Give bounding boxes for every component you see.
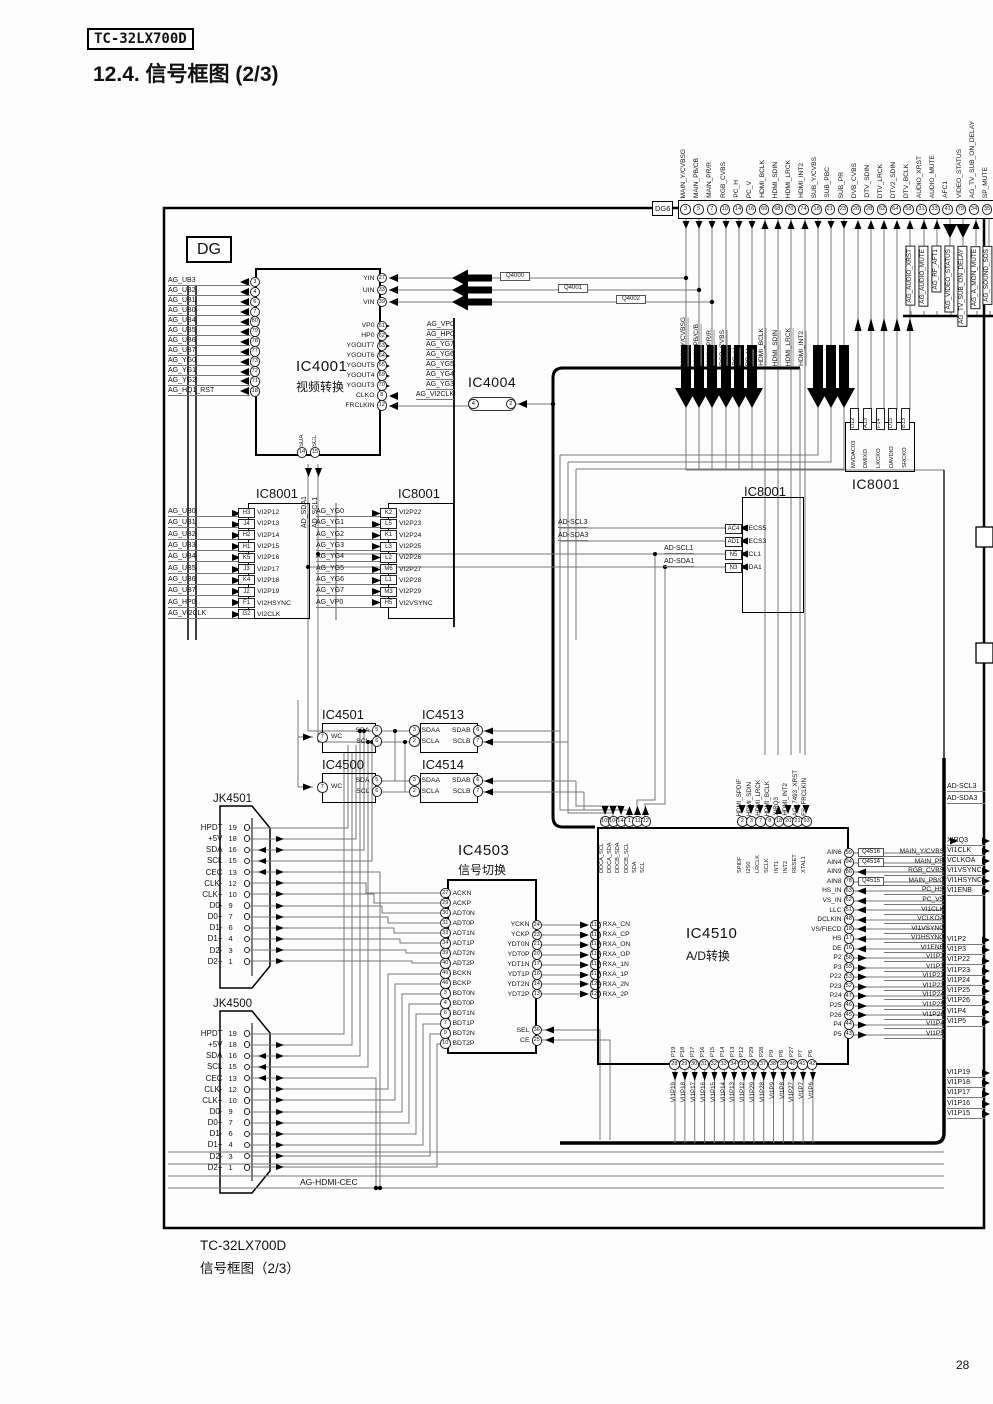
pin-row: AG_YG073 <box>168 357 260 367</box>
dg6-pin: 10 <box>718 204 731 215</box>
ad-sda1-bus-label: AD_SDA1 <box>301 486 308 528</box>
transistor-box: Q4000 <box>500 272 530 281</box>
dg6-signal-label: SUB_PBC <box>822 167 835 198</box>
dg6-pin: 58 <box>902 204 915 215</box>
ag-signal-label: AG_SOUND_SOS <box>982 246 992 305</box>
connector-pin-row: +5V 18 <box>172 1039 250 1050</box>
ic4500-right-pins: SDA5SCL6 <box>342 775 382 797</box>
transistor-box: Q4001 <box>558 284 588 293</box>
signal-row: VI1P24 <box>858 991 944 1001</box>
signal-row: VI1P4 <box>858 1020 944 1030</box>
connector-pin-row: D0+ 7 <box>172 911 250 922</box>
ad-scl1-label: AD-SCL1 <box>664 545 694 554</box>
ic4001-bottom-pins: SDA14 SCL15 <box>296 434 321 458</box>
pin-row: AG_VI2CLKG2VI2CLK <box>168 609 304 620</box>
ic8001c-pins: AC4XECS5 AD1XECS3 N5SCL1 N3SDA1 <box>725 522 801 574</box>
pin-row: YGOUT565 <box>337 361 387 371</box>
pin-row: UIN33 <box>337 284 387 296</box>
pin-row: AG_VP0H5VI2VSYNC <box>316 597 450 608</box>
bus-signal-label: MAIN_Y/CVBSG <box>678 317 691 366</box>
connector-pin-row: D0- 9 <box>172 900 250 911</box>
connector-pin-row: HPDT 19 <box>172 822 250 833</box>
pin-row: AG_UB0H3VI2P12 <box>168 507 304 518</box>
pin-row: AG_UB678 <box>168 337 260 347</box>
dg6-pin: 74 <box>797 204 810 215</box>
model-badge: TC-32LX700D <box>87 28 194 50</box>
pin-row: AG_UB579 <box>168 327 260 337</box>
bus-signal-label: HDMI_INT2 <box>796 331 809 366</box>
dg6-pin: 31 <box>915 204 928 215</box>
ic4510-bottom-pins: P1928P1829P1730P1631P1532P1433P1334P1235… <box>670 1037 818 1070</box>
pin-row: AC4XECS5 <box>725 522 801 535</box>
ic8001a-title: IC8001 <box>256 486 298 501</box>
pin-row: AG_UB16 <box>168 297 260 307</box>
dg6-pin: 64 <box>889 204 902 215</box>
signal-row: AG_YG4 <box>392 371 454 381</box>
jk4500-title: JK4500 <box>213 998 252 1010</box>
ad-sda1-label: AD-SDA1 <box>664 558 694 567</box>
right-edge-mid: XIRQ3VI1CLKVCLKOAVI1VSYNCVI1HSYNCVI1ENB <box>947 836 985 897</box>
pin-row: AG_UB6K4VI2P18 <box>168 575 304 586</box>
ic8001b-title: IC8001 <box>398 486 440 501</box>
ic4001-left-pins: AG_UB33 AG_UB24 AG_UB16 AG_UB07 AG_UB480… <box>168 277 260 396</box>
ic8001d-title: IC8001 <box>852 476 900 492</box>
signal-row: VI1CLK <box>858 905 944 915</box>
dg6-signal-label: AFC1 <box>940 181 953 198</box>
ic4510-right-signals: Q4516 MAIN_Y/CVBS Q4514 MAIN_PR RGB_CVBS… <box>858 848 944 1039</box>
dg6-pin: 62 <box>876 204 889 215</box>
pin-row: AG_YG5M6VI2P27 <box>316 563 450 574</box>
ic4514-right-pins: SDAB6SCLB7 <box>445 775 483 797</box>
pin-box: A13 <box>863 408 872 430</box>
connector-pin-row: D0+ 7 <box>172 1117 250 1128</box>
dg6-signal-label: DTV_SDIN <box>862 165 875 198</box>
pin-row: VIN39 <box>337 296 387 308</box>
pin-row: CLKO8 <box>337 391 387 401</box>
signal-row: AG_VP0 <box>392 321 454 331</box>
dg6-signal-label: MAIN_PR/R <box>704 162 717 198</box>
ad-sda3-label: AD-SDA3 <box>558 532 588 541</box>
pin-row: FRCLKIN12 <box>337 401 387 411</box>
signal-row: VI1P23 <box>858 982 944 992</box>
pin-box: F14 <box>876 408 885 430</box>
bus-signal-label: HDMI_SDIN <box>770 330 783 366</box>
ic4004-title: IC4004 <box>468 374 516 390</box>
connector-pin-row: D1+ 4 <box>172 933 250 944</box>
transistor-box: Q4515 <box>858 877 884 886</box>
pin-row: AD1XECS3 <box>725 535 801 548</box>
dg6-pin: 28 <box>863 204 876 215</box>
dg6-pin: 70 <box>784 204 797 215</box>
pin-col: SDA14 <box>296 434 308 458</box>
connector-pin-row: D2- 3 <box>172 945 250 956</box>
dg6-signal-label: SUB_Y/CVBS <box>809 157 822 198</box>
connector-pin-row: D0- 9 <box>172 1106 250 1117</box>
connector-pin-row: D2- 3 <box>172 1151 250 1162</box>
ic4510-top-pins-a: 10510614411112 <box>600 816 649 827</box>
dg6-connector-label: DG6 <box>652 201 673 216</box>
ic4001-right-signals: AG_VP0 AG_HP0 AG_YG7 AG_YG6 AG_YG5 AG_YG… <box>392 321 454 410</box>
pin-row: AG_UB7J2VI2P19 <box>168 586 304 597</box>
jk4501-title: JK4501 <box>213 793 252 805</box>
dg6-pin: 79 <box>954 204 967 215</box>
dg6-pin: 16 <box>745 204 758 215</box>
signal-row: Q4515 MAIN_PB/C <box>858 877 944 887</box>
ic4500-wc-pin: 7 <box>317 782 328 793</box>
pin-row: AG_UB3H1VI2P15 <box>168 541 304 552</box>
pin-row: AG_UB480 <box>168 317 260 327</box>
dg6-signal-label: MAIN_PB/CB <box>691 158 704 198</box>
pin-row: AG_YG271 <box>168 376 260 386</box>
connector-pin-row: D2+ 1 <box>172 1162 250 1173</box>
ic8001d-pinnames: MVDAC03DMIXOLKCKODAVDIOSRCKO <box>850 428 910 468</box>
signal-row <box>392 401 454 411</box>
transistor-box: Q4002 <box>616 295 646 304</box>
pin-row: AG_UB2H2VI2P14 <box>168 530 304 541</box>
bus-signal-label: RGB_CVBS <box>717 330 730 366</box>
ic4510-subtitle: A/D转换 <box>686 947 730 964</box>
ic4503-right-pins: YCKN24YCKP23YDT0N21YDT0P20YDT1N17YDT1P16… <box>474 920 542 999</box>
signal-row: VI1P22 <box>858 972 944 982</box>
dg6-top-labels: MAIN_Y/CVBSGMAIN_PB/CBMAIN_PR/RRGB_CVBSP… <box>678 116 993 198</box>
signal-row: AG_HP0 <box>392 331 454 341</box>
dg6-signal-label: PC_V <box>744 181 757 198</box>
dg6-signal-label: VIDEO_STATUS <box>953 149 966 198</box>
ag-hdmi-cec-label: AG-HDMI-CEC <box>300 1177 358 1187</box>
bus-signal-label: PC_V <box>744 349 757 366</box>
signal-row: PC_HS <box>858 886 944 896</box>
ag-signal-label: AG_AUDIO_MUTE <box>918 246 928 307</box>
signal-row: VI1P3 <box>858 963 944 973</box>
ic4001-right-pins: VP061 HP062 YGOUT763 YGOUT664 YGOUT565 Y… <box>337 321 387 410</box>
dg6-signal-label: PC_H <box>730 180 743 198</box>
pin-row: VP061 <box>337 321 387 331</box>
dg6-pin: 14 <box>731 204 744 215</box>
signal-row: AG_VI2CLK <box>392 391 454 401</box>
connector-pin-row: D1- 6 <box>172 922 250 933</box>
jk4501-pins: HPDT 19 +5V 18 SDA 16 SCL 15 CEC 13 CLK-… <box>172 822 250 967</box>
right-edge-pgroup: VI1P2VI1P3VI1P22VI1P23VI1P24VI1P25VI1P26… <box>947 935 985 1028</box>
ag-signal-label: AG_VIDEO_STATUS <box>944 246 954 313</box>
dg-label: DG <box>186 236 232 263</box>
dg6-signal-label: AUDIO_XRST <box>914 156 927 198</box>
connector-pin-row: CLK- 12 <box>172 1084 250 1095</box>
ic8001b-pins: AG_YG0K2VI2P22 AG_YG1L5VI2P23 AG_YG2K1VI… <box>316 507 450 609</box>
dg6-signal-label: HDMI_LRCK <box>783 160 796 198</box>
signal-row: VI1ENB <box>858 943 944 953</box>
signal-row: Q4514 MAIN_PR <box>858 858 944 868</box>
pin-row: AG_YG6L1VI2P28 <box>316 575 450 586</box>
caption-title: 信号框图（2/3） <box>200 1257 300 1277</box>
pin-row: AG_UB1J4VI2P13 <box>168 518 304 529</box>
signal-row: AG_YG5 <box>392 361 454 371</box>
pin-row: AG_YG3L3VI2P25 <box>316 541 450 552</box>
signal-row: VCLKOA <box>858 915 944 925</box>
connector-pin-row: D1+ 4 <box>172 1139 250 1150</box>
ag-signal-label: AG_A_MON_MUTE <box>970 246 980 309</box>
ic4501-wc-pin: 7 <box>317 732 328 743</box>
connector-pin-row: CEC 13 <box>172 867 250 878</box>
signal-row: RGB_CVBS <box>858 867 944 877</box>
dg6-pin: 5 <box>692 204 705 215</box>
ic8001d-pinboxes: D12A13F14D15B13 <box>850 408 910 430</box>
signal-row: Q4516 MAIN_Y/CVBS <box>858 848 944 858</box>
connector-pin-row: SCL 15 <box>172 855 250 866</box>
dg6-signal-label: AUDIO_MUTE <box>927 155 940 198</box>
dg6-pin: 21 <box>823 204 836 215</box>
bus-signal-label: HDMI_BCLK <box>757 328 770 366</box>
connector-pin-row: D2+ 1 <box>172 956 250 967</box>
dg6-signal-label: RGB_CVBS <box>717 162 730 198</box>
dg6-signal-label: AG_TV_SUB_ON_DELAY <box>966 121 979 198</box>
signal-row: AG_YG3 <box>392 381 454 391</box>
ic4513-title: IC4513 <box>422 707 464 722</box>
connector-pin-row: HPDT 19 <box>172 1028 250 1039</box>
connector-pin-row: SDA 16 <box>172 1050 250 1061</box>
transistor-box: Q4514 <box>858 858 884 867</box>
signal-row: VI1VSYNC <box>858 924 944 934</box>
ad-scl3-label: AD-SCL3 <box>558 519 588 528</box>
dg6-signal-label: HDMI_INT2 <box>796 163 809 198</box>
pin-box: B13 <box>901 408 910 430</box>
signal-row: VI1P2 <box>858 953 944 963</box>
ic4510-top-signals: HDMI_SPDIFHDMI_SDINHDMI_LRCKHDMI_BCLKXIR… <box>736 742 810 816</box>
ic4001-top-right-pins: YIN27 UIN33 VIN39 <box>337 272 387 308</box>
schematic-page: TC-32LX700D 12.4. 信号框图 (2/3) DG DG6 MAIN… <box>0 0 993 1404</box>
connector-pin-row: +5V 18 <box>172 833 250 844</box>
ag-boxed-labels: AG_AUDIO_XRSTAG_AUDIO_MUTEAG_RF_AFT1AG_V… <box>905 246 993 327</box>
dg6-pin: 18 <box>810 204 823 215</box>
connector-pin-row: SDA 16 <box>172 844 250 855</box>
right-edge-bottom: VI1P19VI1P18VI1P17VI1P16VI1P15 <box>947 1068 985 1119</box>
pin-row: AG_HP0F1VI2HSYNC <box>168 597 304 608</box>
pin-row: YIN27 <box>337 272 387 284</box>
dg6-pin: 41 <box>941 204 954 215</box>
connector-pin-row: D1- 6 <box>172 1128 250 1139</box>
pin-row: AG_YG1L5VI2P23 <box>316 518 450 529</box>
ag-signal-label: AG_RF_AFT1 <box>931 246 941 293</box>
ic4503-subtitle: 信号切换 <box>458 861 506 878</box>
pin-row: AG_YG4L2VI2P26 <box>316 552 450 563</box>
signal-row: AG_YG7 <box>392 341 454 351</box>
signal-row: VI1P26 <box>858 1010 944 1020</box>
dg6-pin: 7 <box>705 204 718 215</box>
pin: 2 <box>506 399 517 410</box>
pin-row: AG_YG172 <box>168 366 260 376</box>
page-number: 28 <box>956 1358 969 1372</box>
signal-row: PC_VS <box>858 896 944 906</box>
ic4510-top-names-a: DDCA_SCLDDCA_SDADDCB_SDADDCB_SCLSDASCL <box>599 833 648 873</box>
pin: 4 <box>468 399 479 410</box>
dg6-pin: 66 <box>758 204 771 215</box>
ag-signal-label: AG_AUDIO_XRST <box>905 246 915 306</box>
pin-row: AG_UB33 <box>168 277 260 287</box>
connector-pin-row: CEC 13 <box>172 1073 250 1084</box>
pin-row: AG_YG0K2VI2P22 <box>316 507 450 518</box>
ic4510-title: IC4510 <box>686 925 737 942</box>
connector-pin-row: CLK+ 10 <box>172 1095 250 1106</box>
dg6-pin: 26 <box>849 204 862 215</box>
signal-row: VI1P5 <box>858 1029 944 1039</box>
pin-row: AG_YG7M3VI2P29 <box>316 586 450 597</box>
dg6-signal-label: MAIN_Y/CVBSG <box>678 149 691 198</box>
caption-model: TC-32LX700D <box>200 1238 286 1253</box>
pin-row: YGOUT370 <box>337 381 387 391</box>
ic4004-pins: 42 <box>468 399 516 410</box>
bus-signal-label: MAIN_PR/R <box>704 330 717 366</box>
signal-row: VI1HSYNC <box>858 934 944 944</box>
ic4510-bottom-signals: VI1P19VI1P18VI1P17VI1P16VI1P15VI1P14VI1P… <box>670 1082 818 1102</box>
dg6-signal-label: DTV_BCLK <box>901 164 914 198</box>
connector-pin-row: CLK- 12 <box>172 878 250 889</box>
dg6-pin: 35 <box>981 204 993 215</box>
ic4501-right-pins: SDA5SCL6 <box>342 725 382 747</box>
pin-row: N3SDA1 <box>725 561 801 574</box>
bus-signal-label: HDMI_LRCK <box>783 328 796 366</box>
pin-row: YGOUT763 <box>337 341 387 351</box>
dg6-pin: 34 <box>967 204 980 215</box>
connector-pin-row: CLK+ 10 <box>172 889 250 900</box>
pin-row: AG_UB5J3VI2P17 <box>168 563 304 574</box>
ic4503-ctl-pins: SEL36CE25 <box>486 1025 542 1045</box>
dg6-pin: 3 <box>679 204 692 215</box>
dg6-connector-bar: 3571014166668707418212326286264583133417… <box>678 200 993 219</box>
pin-row: HP062 <box>337 331 387 341</box>
pin-row: AG_YG2K1VI2P24 <box>316 530 450 541</box>
pin-col: SCL15 <box>309 434 321 458</box>
signal-row: AG_YG6 <box>392 351 454 361</box>
ic4510-top-pins-b: 237818202193 <box>737 816 811 827</box>
pin-row: AG_UB777 <box>168 347 260 357</box>
dg6-signal-label: DVB_CVBS <box>848 163 861 198</box>
ic4503-title: IC4503 <box>458 842 509 859</box>
dg6-signal-label: SP_MUTE <box>980 167 993 198</box>
ic4500-title: IC4500 <box>322 757 364 772</box>
page-title: 12.4. 信号框图 (2/3) <box>93 58 279 88</box>
signal-row: VI1P25 <box>858 1001 944 1011</box>
right-edge-top: AD-SCL3AD-SDA3 <box>947 781 985 806</box>
dg6-signal-label: DTV_LRCK <box>875 164 888 198</box>
dg6-sub-labels: MAIN_Y/CVBSGMAIN_PB/C/BMAIN_PR/RRGB_CVBS… <box>678 302 810 366</box>
dg6-pin: 68 <box>771 204 784 215</box>
pin-row: AG_UB24 <box>168 287 260 297</box>
transistor-box: Q4516 <box>858 848 884 857</box>
ag-signal-label: AG_TV_SUB_ON_DELAY <box>957 246 967 327</box>
dg6-signal-label: SUB_PR <box>835 172 848 198</box>
bus-signal-label: PC_H <box>730 348 743 366</box>
pin-row: AG_UB07 <box>168 307 260 317</box>
dg6-pin: 33 <box>928 204 941 215</box>
dg6-signal-label: HDMI_SDIN <box>770 162 783 198</box>
dg6-signal-label: DTV2_SDIN <box>888 162 901 198</box>
pin-box: D15 <box>888 408 897 430</box>
pin-row: YGOUT664 <box>337 351 387 361</box>
bus-signal-label: MAIN_PB/C/B <box>691 324 704 366</box>
ic4510-right-pins: AIN699AIN494AIN986AIN878HS_IN63VS_IN62LL… <box>766 848 854 1039</box>
jk4500-pins: HPDT 19 +5V 18 SDA 16 SCL 15 CEC 13 CLK-… <box>172 1028 250 1173</box>
dg6-pin: 23 <box>836 204 849 215</box>
ic4513-right-pins: SDAB6SCLB7 <box>445 725 483 747</box>
pin-row: AG_UB4K5VI2P16 <box>168 552 304 563</box>
ic4514-title: IC4514 <box>422 757 464 772</box>
pin-row: N5SCL1 <box>725 548 801 561</box>
connector-pin-row: SCL 15 <box>172 1061 250 1072</box>
ic8001a-pins: AG_UB0H3VI2P12 AG_UB1J4VI2P13 AG_UB2H2VI… <box>168 507 304 620</box>
ic4501-title: IC4501 <box>322 707 364 722</box>
dg6-signal-label: HDMI_BCLK <box>757 160 770 198</box>
pin-box: D12 <box>850 408 859 430</box>
pin-row: YGOUT469 <box>337 371 387 381</box>
pin-row: AG_HQ1_RST18 <box>168 386 260 396</box>
